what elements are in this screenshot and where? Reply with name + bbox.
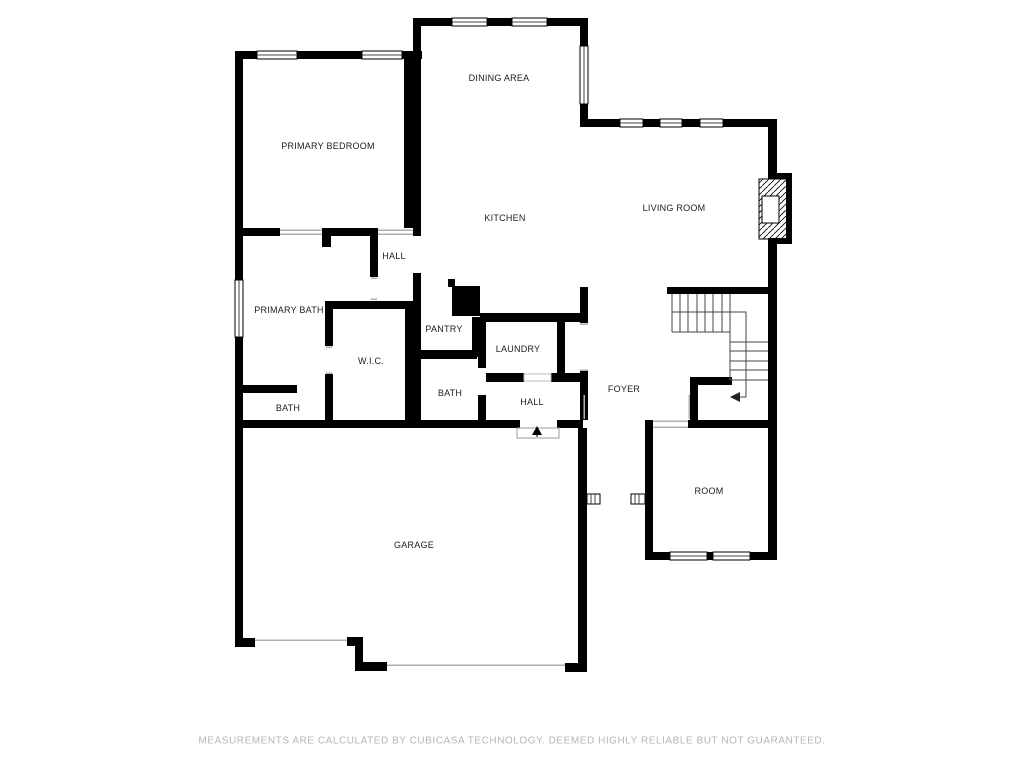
room-label-living-room: LIVING ROOM <box>643 203 706 213</box>
room-label-bath-primary: BATH <box>276 403 300 413</box>
window-icon <box>512 18 547 26</box>
window-icon <box>620 119 643 127</box>
floor-plan-page: PRIMARY BEDROOM DINING AREA KITCHEN LIVI… <box>0 0 1024 768</box>
staircase-icon <box>672 294 768 402</box>
window-icon <box>452 18 487 26</box>
door-arrow-icon <box>517 426 559 438</box>
window-icon <box>580 46 588 104</box>
window-icon <box>713 552 750 560</box>
room-label-pantry: PANTRY <box>425 324 462 334</box>
room-label-room: ROOM <box>695 486 724 496</box>
window-icon <box>362 51 402 59</box>
room-label-bath-middle: BATH <box>438 388 462 398</box>
stair-direction-arrow-icon <box>730 392 740 402</box>
laundry-door-opening <box>524 374 551 381</box>
window-icon <box>587 494 600 504</box>
room-label-primary-bedroom: PRIMARY BEDROOM <box>281 141 374 151</box>
floor-plan-drawing <box>0 0 1024 768</box>
room-label-hall-bedroom: HALL <box>382 251 406 261</box>
window-icon <box>257 51 297 59</box>
room-label-dining-area: DINING AREA <box>469 73 530 83</box>
window-icon <box>670 552 707 560</box>
measurement-disclaimer: MEASUREMENTS ARE CALCULATED BY CUBICASA … <box>198 736 825 747</box>
room-label-hall-entry: HALL <box>520 397 544 407</box>
room-label-wic: W.I.C. <box>358 356 384 366</box>
window-icon <box>631 494 645 504</box>
room-label-foyer: FOYER <box>608 384 640 394</box>
fireplace-icon <box>759 173 792 244</box>
window-icon <box>235 280 243 337</box>
room-label-garage: GARAGE <box>394 540 434 550</box>
window-icon <box>660 119 682 127</box>
room-label-laundry: LAUNDRY <box>496 344 541 354</box>
window-icon <box>700 119 723 127</box>
room-label-primary-bath: PRIMARY BATH <box>254 305 324 315</box>
room-label-kitchen: KITCHEN <box>484 213 525 223</box>
